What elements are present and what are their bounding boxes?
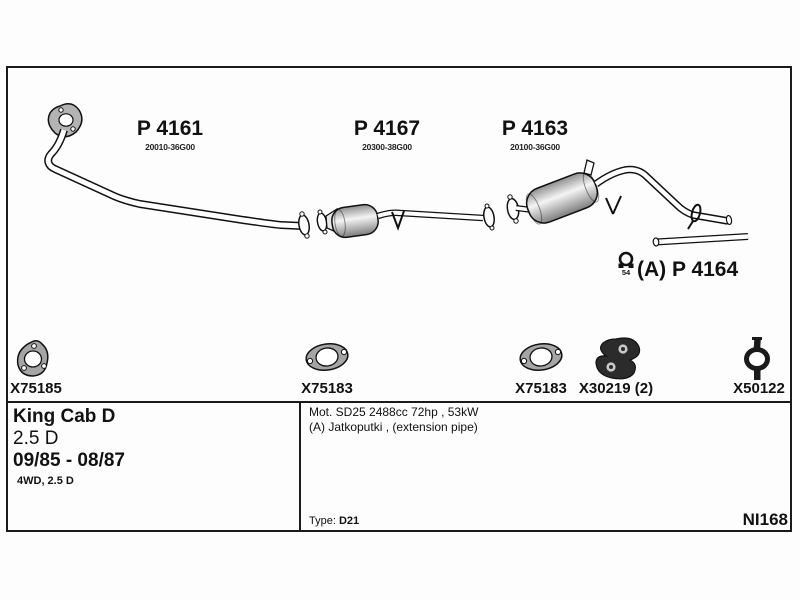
exhaust-system-drawing <box>0 0 800 600</box>
hanger-ring-x50122-icon <box>747 337 768 380</box>
part-oem-p4163: 20100-36G00 <box>480 142 590 152</box>
gasket-x75183-icon-2 <box>518 341 563 373</box>
extension-pipe-drawing <box>653 237 748 247</box>
gasket-x75185-icon <box>18 341 48 376</box>
doc-code: NI168 <box>700 510 788 530</box>
part-label-p4167: P 4167 <box>332 117 442 141</box>
type-label: Type: <box>309 515 336 527</box>
clamp-size-label: 54 <box>618 268 634 277</box>
part-label-p4161: P 4161 <box>115 117 225 141</box>
fitting-label-x50122: X50122 <box>728 380 790 397</box>
middle-silencer-drawing <box>316 203 483 239</box>
part-label-p4163: P 4163 <box>480 117 590 141</box>
gasket-x75183-icon <box>304 341 349 373</box>
engine-note: Mot. SD25 2488cc 72hp , 53kW <box>309 405 478 419</box>
rubber-mount-x30219-icon <box>596 338 640 379</box>
vehicle-variant: 4WD, 2.5 D <box>17 475 74 487</box>
joint-flanges-drawing <box>482 195 532 230</box>
part-oem-p4161: 20010-36G00 <box>115 142 225 152</box>
part-label-p4164: (A) P 4164 <box>637 258 738 282</box>
vehicle-engine: 2.5 D <box>13 428 58 450</box>
fitting-label-x75185: X75185 <box>5 380 67 397</box>
extension-note: (A) Jatkoputki , (extension pipe) <box>309 420 478 434</box>
exhaust-parts-diagram-page: P 4161 20010-36G00 P 4167 20300-38G00 P … <box>0 0 800 600</box>
vehicle-model: King Cab D <box>13 406 115 428</box>
fitting-label-x75183-b: X75183 <box>512 380 570 397</box>
type-value: D21 <box>339 515 359 527</box>
type-row: Type: D21 <box>309 515 359 527</box>
vehicle-years: 09/85 - 08/87 <box>13 450 125 472</box>
fitting-label-x30219: X30219 (2) <box>578 380 654 397</box>
clamp-icon <box>619 253 634 268</box>
rear-silencer-drawing <box>522 160 732 229</box>
part-oem-p4167: 20300-38G00 <box>332 142 442 152</box>
fitting-label-x75183-a: X75183 <box>297 380 357 397</box>
